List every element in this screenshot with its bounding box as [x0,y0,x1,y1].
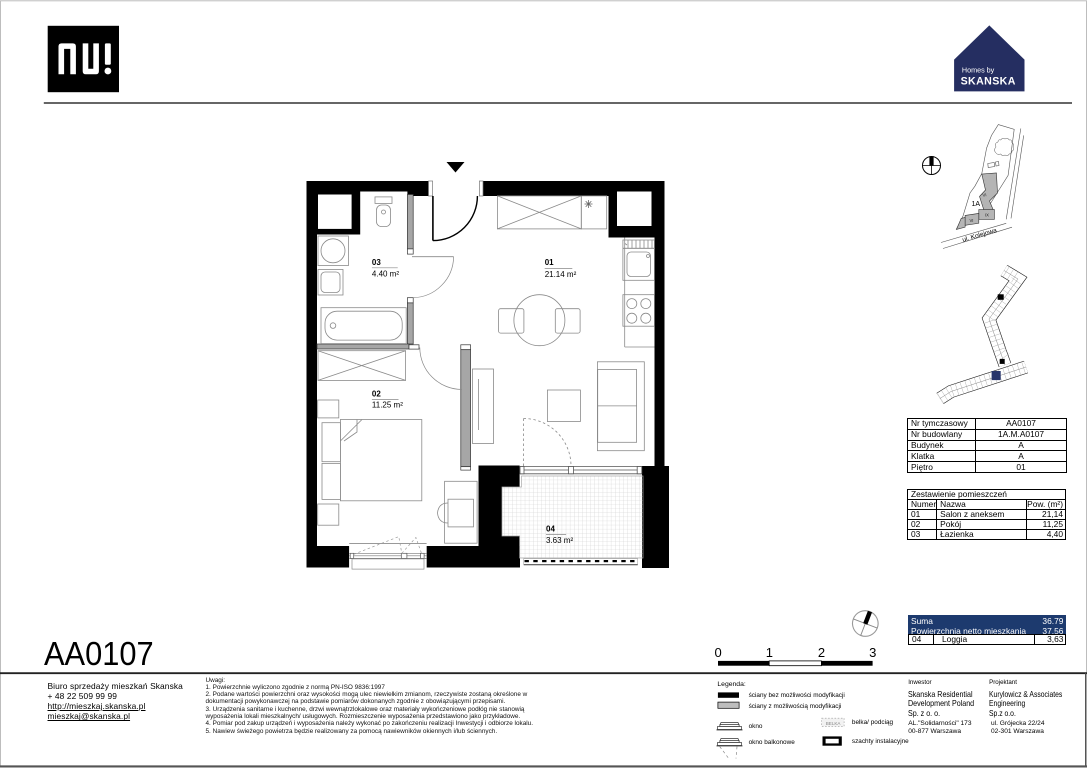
svg-text:3.63 m²: 3.63 m² [546,536,573,545]
svg-text:2: 2 [818,645,825,660]
svg-text:VI: VI [982,192,987,198]
svg-text:3: 3 [869,645,876,660]
svg-text:01: 01 [545,258,554,267]
svg-text:IX: IX [985,213,989,218]
svg-text:02: 02 [372,390,381,399]
svg-text:ul. Kolejowa: ul. Kolejowa [962,227,998,244]
svg-text:BELKA: BELKA [826,721,842,726]
svg-text:1: 1 [766,645,773,660]
svg-text:04: 04 [546,524,555,533]
svg-text:1A: 1A [972,201,981,208]
svg-text:VI: VI [970,218,974,223]
svg-text:03: 03 [372,258,381,267]
svg-text:21.14 m²: 21.14 m² [545,270,577,279]
svg-text:SKANSKA: SKANSKA [961,76,1016,88]
svg-text:0: 0 [715,645,722,660]
svg-text:Homes by: Homes by [962,65,995,74]
svg-text:11.25 m²: 11.25 m² [372,401,403,410]
svg-text:4.40 m²: 4.40 m² [372,269,399,278]
